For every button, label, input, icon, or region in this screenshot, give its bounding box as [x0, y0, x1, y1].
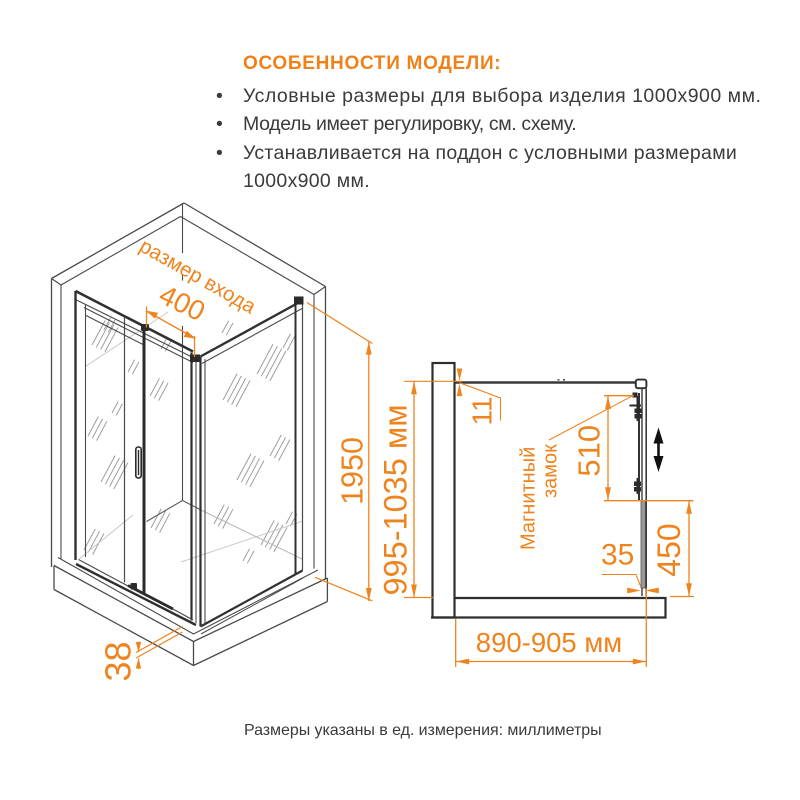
svg-text:1950: 1950 [336, 437, 370, 505]
svg-text:35: 35 [601, 539, 634, 572]
svg-text:Магнитный: Магнитный [518, 447, 540, 550]
svg-text:38: 38 [98, 641, 139, 681]
svg-text:510: 510 [572, 425, 607, 477]
svg-text:890-905 мм: 890-905 мм [476, 627, 622, 658]
svg-text:11: 11 [467, 396, 498, 425]
svg-text:замок: замок [540, 444, 562, 498]
svg-text:995-1035 мм: 995-1035 мм [378, 404, 414, 595]
svg-text:450: 450 [651, 523, 687, 576]
